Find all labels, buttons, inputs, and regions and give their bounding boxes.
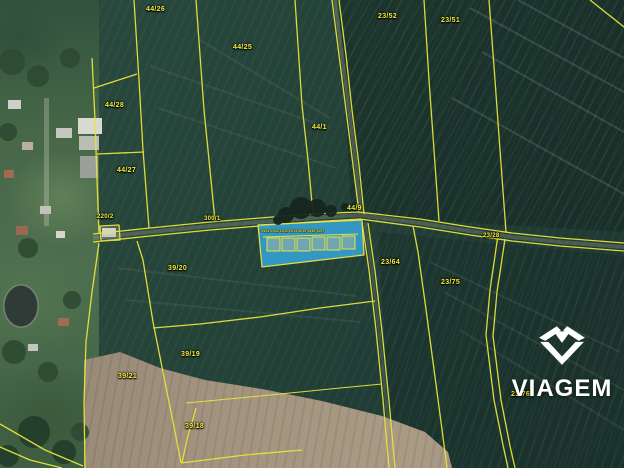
viagem-watermark: VIAGEM	[502, 324, 622, 403]
parcel-label: 23/51	[441, 17, 460, 25]
satellite-map[interactable]: 44/26 44/25 23/52 23/51 44/28 44/27 44/1…	[0, 0, 624, 468]
parcel-label: 44/25	[233, 44, 252, 52]
parcel-label: 23/28	[483, 232, 500, 240]
parcel-label: 39/21	[118, 373, 137, 381]
parcel-label: 39/19	[181, 351, 200, 359]
parcel-label: 39/20	[168, 265, 187, 273]
parcel-label: 23/52	[378, 13, 397, 21]
parcel-label: 23/64	[381, 259, 400, 267]
parcel-label: 44/28	[105, 102, 124, 110]
parcel-label: 44/9	[347, 205, 362, 213]
parcel-label: 23/75	[441, 279, 460, 287]
parcel-label: 220/2	[97, 213, 114, 221]
viagem-logo-icon	[538, 324, 586, 366]
parcel-label: 44/27	[117, 167, 136, 175]
garage-row-labels: 44/41 44/42 44/43 44/44 44/45 44/46 44/4…	[261, 229, 324, 233]
parcel-label: 300/1	[204, 215, 221, 223]
parcel-label: 39/18	[185, 423, 204, 431]
parcel-label: 44/1	[312, 124, 327, 132]
parcel-label: 44/26	[146, 6, 165, 14]
watermark-brand-text: VIAGEM	[502, 375, 622, 403]
